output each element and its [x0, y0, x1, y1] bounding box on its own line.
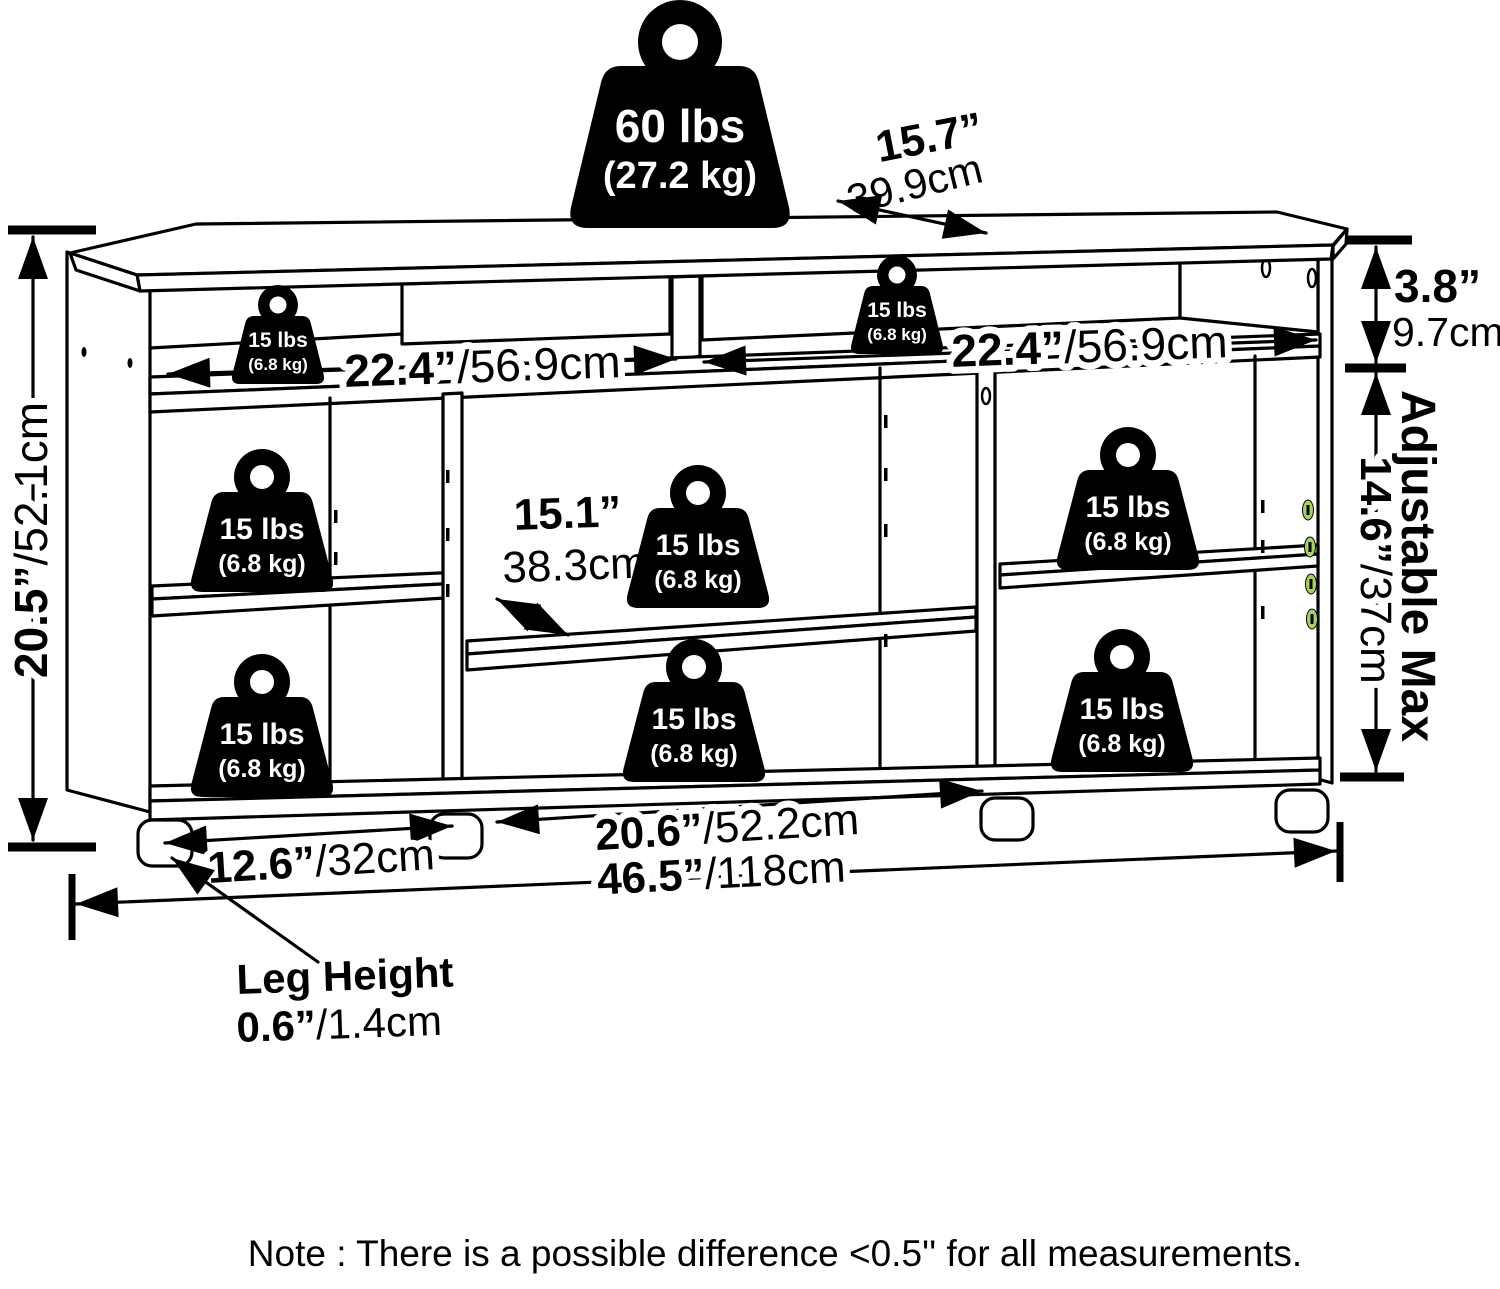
weight-15lbs-badge-center-lower: 15 lbs(6.8 kg)	[623, 639, 765, 782]
weight-15lbs-badge-right-upper: 15 lbs(6.8 kg)	[1057, 427, 1199, 570]
weight-kg-label: (6.8 kg)	[1084, 528, 1172, 556]
screw-hole	[128, 358, 133, 368]
back-panel-left	[402, 276, 670, 344]
left-top-shelf-width-label: 22.4”/56.9cm	[344, 335, 622, 397]
weight-handle-hole	[1110, 645, 1134, 669]
weight-lbs-label: 15 lbs	[655, 529, 740, 562]
weight-handle-hole	[682, 655, 706, 679]
top-section-inches-label: 3.8”	[1394, 260, 1481, 312]
weight-lbs-label: 15 lbs	[248, 329, 308, 352]
tv-stand-dimension-drawing: 20.5”/52.1cm 15.7” 39.9cm 3.8” 9.7cm 14.…	[0, 0, 1500, 1289]
adjustable-max-label: Adjustable Max	[1391, 390, 1444, 742]
divider-right	[977, 367, 995, 794]
leg	[981, 798, 1033, 840]
weight-kg-label: (6.8 kg)	[218, 550, 306, 578]
product-dimension-diagram: 20.5”/52.1cm 15.7” 39.9cm 3.8” 9.7cm 14.…	[0, 0, 1500, 1289]
leg	[430, 814, 482, 858]
dimension-depth: 15.7” 39.9cm	[838, 103, 987, 233]
weight-15lbs-badge-right-lower: 15 lbs(6.8 kg)	[1051, 629, 1193, 772]
dimension-top-section-height: 3.8” 9.7cm	[1345, 240, 1500, 368]
middle-shelf-depth-inches-label: 15.1”	[513, 487, 622, 540]
weight-handle-hole	[889, 267, 906, 284]
leg-height-value: 0.6”/1.4cm	[236, 997, 443, 1051]
weight-kg-label: (6.8 kg)	[248, 355, 308, 374]
dimension-middle-shelf-depth: 15.1” 38.3cm	[497, 487, 647, 635]
divider-left	[443, 393, 462, 801]
top-section-cm-label: 9.7cm	[1392, 309, 1500, 355]
weight-lbs-label: 15 lbs	[1079, 693, 1164, 726]
weight-kg-label: (6.8 kg)	[1078, 730, 1166, 758]
weight-handle-hole	[270, 297, 287, 314]
weight-kg-label: (6.8 kg)	[867, 325, 927, 344]
left-end-panel	[67, 252, 150, 812]
weight-lbs-label: 15 lbs	[219, 718, 304, 751]
weight-kg-label: (27.2 kg)	[603, 155, 757, 197]
leg-height-title: Leg Height	[236, 948, 455, 1003]
weight-15lbs-badge-top-left: 15 lbs(6.8 kg)	[232, 285, 324, 384]
right-top-shelf-width-label: 22.4”/56.9cm	[951, 315, 1229, 377]
dimension-adjustable-height: 14.6”/37cm Adjustable Max	[1340, 373, 1444, 777]
weight-handle-hole	[662, 24, 698, 60]
overall-height-label: 20.5”/52.1cm	[5, 402, 57, 678]
middle-shelf-depth-cm-label: 38.3cm	[502, 539, 648, 593]
weight-kg-label: (6.8 kg)	[218, 755, 306, 783]
weight-handle-hole	[250, 670, 274, 694]
weight-60lbs-badge: 60 lbs(27.2 kg)	[570, 0, 789, 228]
weight-handle-hole	[686, 481, 710, 505]
right-corner-post	[1318, 246, 1332, 783]
weight-kg-label: (6.8 kg)	[654, 566, 742, 594]
leg	[1276, 790, 1328, 832]
screw-hole	[82, 347, 87, 357]
weight-15lbs-badge-left-lower: 15 lbs(6.8 kg)	[191, 654, 333, 797]
weight-lbs-label: 60 lbs	[615, 100, 745, 152]
dimension-leg-height: Leg Height 0.6”/1.4cm	[172, 858, 454, 1051]
weight-lbs-label: 15 lbs	[867, 299, 927, 322]
weight-handle-hole	[250, 465, 274, 489]
top-row-center-divider	[672, 276, 700, 362]
weight-lbs-label: 15 lbs	[651, 703, 736, 736]
weight-kg-label: (6.8 kg)	[650, 740, 738, 768]
weight-lbs-label: 15 lbs	[219, 513, 304, 546]
weight-15lbs-badge-left-upper: 15 lbs(6.8 kg)	[191, 449, 333, 592]
weight-handle-hole	[1116, 443, 1140, 467]
weight-lbs-label: 15 lbs	[1085, 491, 1170, 524]
note-text: Note : There is a possible difference <0…	[248, 1233, 1302, 1274]
weight-15lbs-badge-center-upper: 15 lbs(6.8 kg)	[627, 465, 769, 608]
